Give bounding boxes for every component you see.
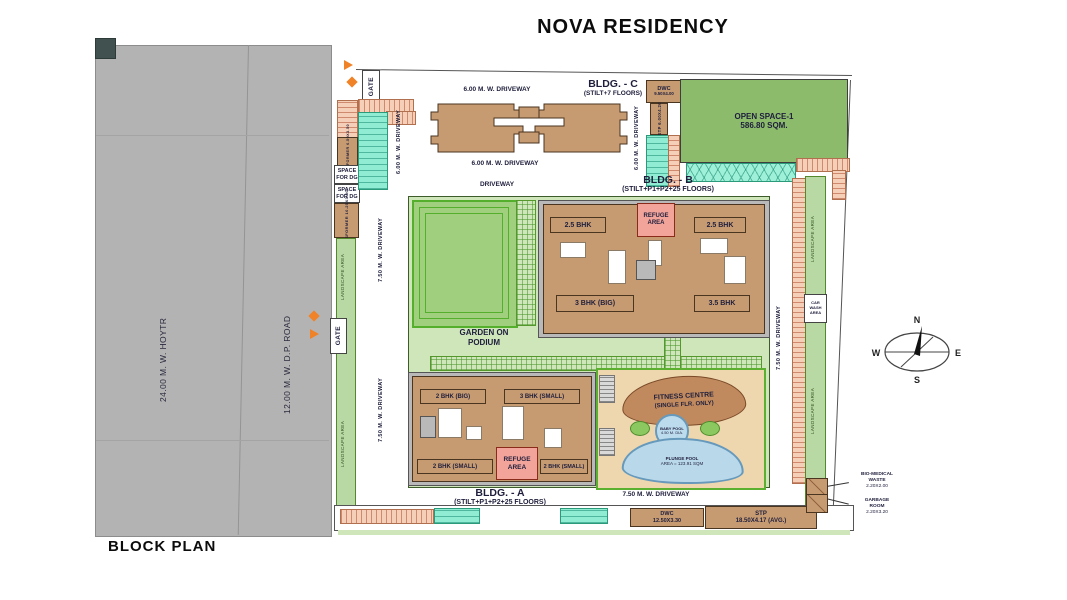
page-title: NOVA RESIDENCY xyxy=(518,16,748,39)
compass-w: W xyxy=(872,348,881,358)
biomedical-leader-line xyxy=(827,482,849,487)
biomedical-label: BIO-MEDICAL WASTE 2.20X2.00 xyxy=(848,472,906,490)
bldg-b-unit-bottom-right: 3.5 BHK xyxy=(694,295,750,312)
fitness-stairs-bottom xyxy=(599,428,615,456)
bldg-b-refuge-line1: REFUGE xyxy=(643,213,668,220)
bldg-a-core-5 xyxy=(420,416,436,438)
stp-top: STP 6.00X4.20 xyxy=(650,103,668,135)
bldg-a-unit-bottom-left: 2 BHK (SMALL) xyxy=(417,459,493,474)
landscape-right-label-1: LANDSCAPE AREA xyxy=(810,206,815,272)
compass-rose: N S W E xyxy=(870,310,962,386)
bldg-b-refuge: REFUGE AREA xyxy=(637,203,675,237)
bldg-c-name: BLDG. - C xyxy=(588,78,638,90)
driveway-750-right-label: 7.50 M. W. DRIVEWAY xyxy=(776,298,782,378)
road-surface xyxy=(95,45,332,537)
transformer-big: TRANSFORMER 10.25X3.50 xyxy=(334,203,359,238)
open-space-name: OPEN SPACE-1 xyxy=(735,112,794,121)
landscape-left-label-1: LANDSCAPE AREA xyxy=(340,248,345,306)
bldg-a-unit-bottom-right: 2 BHK (SMALL) xyxy=(540,459,588,474)
bldg-b-core-6 xyxy=(636,260,656,280)
bldg-b-core-5 xyxy=(724,256,746,284)
dwc-top: DWC 9.50X4.00 xyxy=(646,80,682,103)
biomedical-waste-room xyxy=(806,478,828,495)
bldg-b-core-2 xyxy=(608,250,626,284)
gate-lamp-icon xyxy=(346,76,357,87)
road-joint-line-bottom xyxy=(96,440,329,441)
bldg-a-refuge-line1: REFUGE xyxy=(503,456,530,463)
bldg-c-floors: (STILT+7 FLOORS) xyxy=(584,90,642,97)
space-for-dg-1: SPACE FOR DG xyxy=(334,165,360,184)
driveway-generic-label: DRIVEWAY xyxy=(452,181,542,188)
parking-mint-bottom-1 xyxy=(434,508,480,524)
bldg-c-footprint xyxy=(430,102,628,154)
fitness-planter-left xyxy=(630,421,650,436)
bldg-b-core-1 xyxy=(560,242,586,258)
biomedical-label-dim: 2.20X2.00 xyxy=(866,484,888,490)
stp-bottom-dim: 18.50X4.17 (AVG.) xyxy=(736,518,787,525)
driveway-750-bottom-label: 7.50 M. W. DRIVEWAY xyxy=(596,491,716,498)
car-wash-line3: AREA xyxy=(810,311,821,316)
garden-label-line2: PODIUM xyxy=(468,338,500,348)
garden-label: GARDEN ON PODIUM xyxy=(428,328,540,347)
space-for-dg-1-line2: FOR DG xyxy=(336,175,357,181)
car-wash-area: CAR WASH AREA xyxy=(804,294,827,323)
bldg-a-core-1 xyxy=(438,408,462,438)
gate-lamp-icon-2 xyxy=(308,310,319,321)
plan-title: BLOCK PLAN xyxy=(108,538,216,555)
garden-label-line1: GARDEN ON xyxy=(460,328,509,338)
road-joint-line-top xyxy=(96,135,329,136)
driveway-600-left-label: 6.00 M. W. DRIVEWAY xyxy=(396,106,402,178)
open-space: OPEN SPACE-1 586.80 SQM. xyxy=(680,79,848,163)
stp-top-label: STP 6.00X4.20 xyxy=(657,102,662,136)
landscape-right-label-2: LANDSCAPE AREA xyxy=(810,378,815,444)
bottom-landscape-sliver xyxy=(338,530,850,535)
gate-mid-label: GATE xyxy=(335,326,342,345)
dwc-bottom-dim: 12.50X3.30 xyxy=(653,518,681,524)
gate-top-icons xyxy=(344,60,356,86)
fitness-planter-right xyxy=(700,421,720,436)
bldg-b-core-4 xyxy=(700,238,728,254)
gate-marker-icon xyxy=(344,60,353,70)
garbage-leader-line xyxy=(827,498,849,504)
garbage-label: GARBAGE ROOM 2.20X3.20 xyxy=(848,498,906,516)
bldg-a-core-3 xyxy=(466,426,482,440)
bldg-b-floors: (STILT+P1+P2+25 FLOORS) xyxy=(622,186,714,193)
bldg-b-unit-bottom-left: 3 BHK (BIG) xyxy=(556,295,634,312)
garden-lawn-frame-inner xyxy=(425,213,503,313)
bldg-a-refuge: REFUGE AREA xyxy=(496,447,538,480)
bldg-a-core-4 xyxy=(544,428,562,448)
bldg-a-name: BLDG. - A xyxy=(475,487,524,499)
garbage-label-dim: 2.20X3.20 xyxy=(866,510,888,516)
dwc-bottom: DWC 12.50X3.30 xyxy=(630,508,704,527)
compass-e: E xyxy=(955,348,961,358)
driveway-750-left-upper-label: 7.50 M. W. DRIVEWAY xyxy=(378,212,384,288)
bldg-a-unit-top-left: 2 BHK (BIG) xyxy=(420,389,486,404)
stack-parking-ne-corner xyxy=(832,170,846,200)
garden-path-vertical xyxy=(516,200,536,326)
dwc-top-dim: 9.50X4.00 xyxy=(654,92,674,97)
gate-mid-icons xyxy=(310,312,319,339)
bldg-a-unit-top-right: 3 BHK (SMALL) xyxy=(504,389,580,404)
driveway-750-left-lower-label: 7.50 M. W. DRIVEWAY xyxy=(378,372,384,448)
road-label-dp: 12.00 M. W. D.P. ROAD xyxy=(282,295,292,435)
site-boundary-top xyxy=(356,69,852,76)
compass-n: N xyxy=(914,315,921,325)
gate-mid: GATE xyxy=(330,318,347,354)
compass-s: S xyxy=(914,375,920,385)
landscape-strip-left xyxy=(336,238,356,507)
block-plan-canvas: NOVA RESIDENCY 24.00 M. W. HOYTR 12.00 M… xyxy=(0,0,1067,600)
bldg-b-title: BLDG. - B (STILT+P1+P2+25 FLOORS) xyxy=(588,174,748,193)
landscape-left-label-2: LANDSCAPE AREA xyxy=(340,415,345,473)
stack-parking-bottom xyxy=(340,509,434,524)
plunge-pool-label: PLUNGE POOL AREA = 123.91 SQM xyxy=(642,456,722,467)
bldg-b-name: BLDG. - B xyxy=(643,174,693,186)
bldg-b-unit-top-left: 2.5 BHK xyxy=(550,217,606,233)
bldg-a-core-2 xyxy=(502,406,524,440)
plunge-pool-line2: AREA = 123.91 SQM xyxy=(661,461,703,466)
fitness-label-line2: (SINGLE FLR. ONLY) xyxy=(655,400,714,411)
parking-mint-bottom-2 xyxy=(560,508,608,524)
bldg-b-refuge-line2: AREA xyxy=(647,220,664,227)
bldg-b-unit-top-right: 2.5 BHK xyxy=(694,217,746,233)
open-space-size: 586.80 SQM. xyxy=(740,121,787,130)
bldg-a-refuge-line2: AREA xyxy=(508,464,526,471)
driveway-600-top-label: 6.00 M. W. DRIVEWAY xyxy=(432,86,562,93)
fitness-stairs-top xyxy=(599,375,615,403)
stp-bottom-name: STP xyxy=(755,511,767,518)
baby-pool-line2: 4.50 M. DIA. xyxy=(661,431,683,435)
garbage-room xyxy=(806,494,828,513)
transformer-small: TRANSFORMER 6.50X3.50 xyxy=(337,137,358,167)
landscape-strip-right xyxy=(805,176,826,508)
gate-marker-icon-2 xyxy=(310,329,319,339)
parking-mint-left xyxy=(358,112,388,190)
driveway-600-bottom-label: 6.00 M. W. DRIVEWAY xyxy=(440,160,570,167)
driveway-600-right-label: 6.00 M. W. DRIVEWAY xyxy=(634,102,640,174)
stp-bottom: STP 18.50X4.17 (AVG.) xyxy=(705,506,817,529)
road-corner-patch xyxy=(95,38,116,59)
gate-top-label: GATE xyxy=(368,77,375,96)
road-label-main: 24.00 M. W. HOYTR xyxy=(158,295,168,425)
